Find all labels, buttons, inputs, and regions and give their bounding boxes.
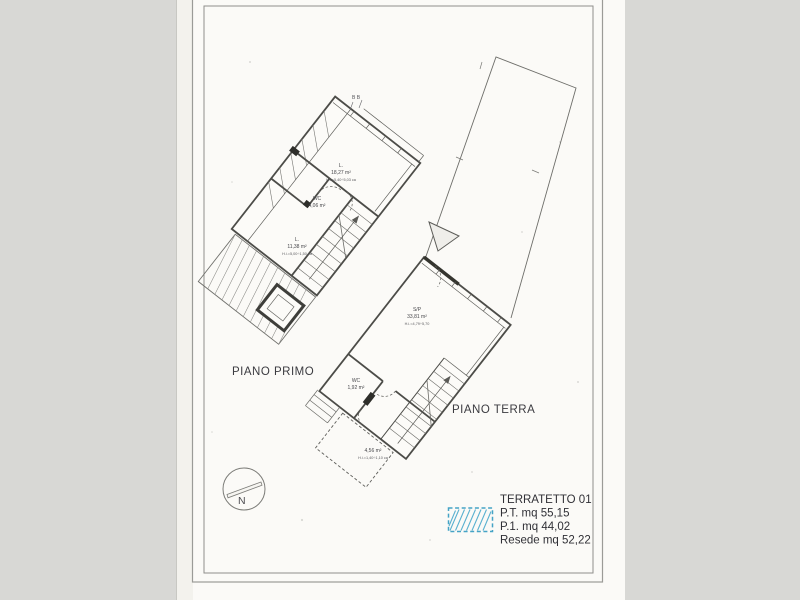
plan-title-first-floor: PIANO PRIMO <box>232 366 314 378</box>
room-height: H.i.=1,40÷1,10 ca <box>358 456 389 460</box>
room-area: 1,92 m² <box>348 385 365 391</box>
room-area: 18,27 m² <box>331 170 351 176</box>
room-height: H.i.=5,40÷5,03 ca <box>326 178 357 182</box>
room-height: H.i.=4,79÷5,70 <box>405 322 430 326</box>
legend-entry-pt: P.T. mq 55,15 <box>500 508 569 520</box>
floorplan-drawing: B B L. 18,27 m² H.i.=5,40÷5,03 ca WC 4,0… <box>0 0 800 600</box>
room-label: S/P <box>413 307 422 313</box>
section-marker-label: B B <box>352 95 361 101</box>
plan-title-ground-floor: PIANO TERRA <box>452 404 535 416</box>
compass-north-label: N <box>238 495 246 507</box>
room-area: 4,06 m² <box>309 203 326 209</box>
room-area: 33,81 m² <box>407 314 427 320</box>
scanned-floorplan-page: B B L. 18,27 m² H.i.=5,40÷5,03 ca WC 4,0… <box>0 0 800 600</box>
room-label: L. <box>295 237 299 243</box>
legend-entry-p1: P.1. mq 44,02 <box>500 521 570 533</box>
room-label: L. <box>339 163 343 169</box>
room-area: 11,38 m² <box>287 244 307 250</box>
room-area: 4,56 m² <box>365 448 382 454</box>
room-label: WC <box>352 378 361 384</box>
room-height: H.i.=5,00÷1,50 ca <box>282 252 313 256</box>
room-label: WC <box>313 196 322 202</box>
north-compass: N <box>223 468 265 510</box>
legend-title: TERRATETTO 01 <box>500 494 592 506</box>
legend-entry-resede: Resede mq 52,22 <box>500 535 591 547</box>
paper-edge-strip <box>176 0 193 600</box>
